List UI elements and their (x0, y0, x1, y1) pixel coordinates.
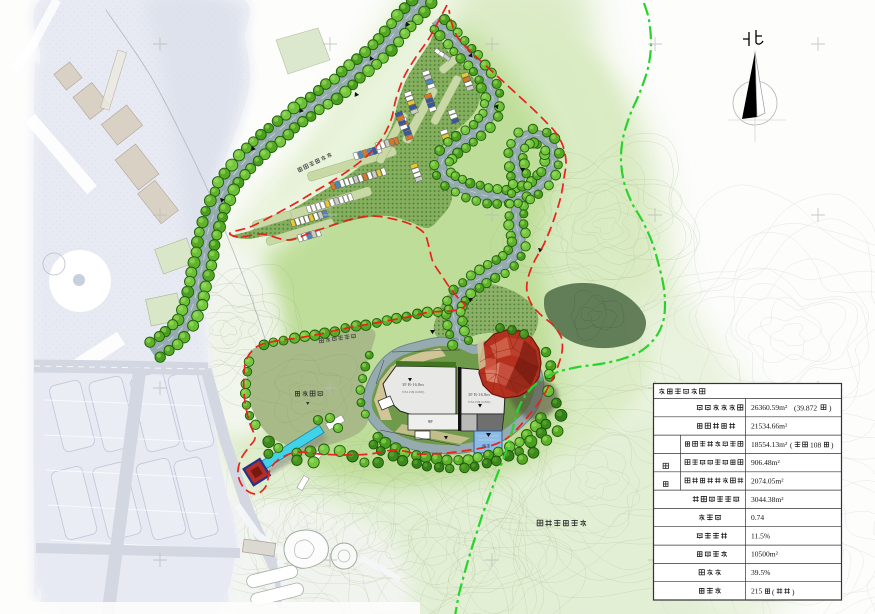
svg-text:3F B-16.8m: 3F B-16.8m (402, 382, 424, 387)
svg-text:WM.198(16.800): WM.198(16.800) (468, 400, 490, 404)
svg-text:215: 215 (751, 586, 763, 595)
svg-text:2074.05m²: 2074.05m² (751, 476, 784, 485)
svg-text:18554.13m²: 18554.13m² (751, 440, 788, 449)
svg-text:39.5%: 39.5% (751, 568, 770, 577)
svg-text:10500m²: 10500m² (751, 550, 779, 559)
svg-text:3044.38m²: 3044.38m² (751, 495, 784, 504)
svg-text:9F: 9F (428, 419, 433, 424)
svg-text:3F B-16.8m: 3F B-16.8m (468, 392, 490, 397)
svg-text:WM.198(16.800): WM.198(16.800) (402, 390, 424, 394)
svg-text:(39.872: (39.872 (794, 404, 817, 413)
svg-text:906.48m²: 906.48m² (751, 458, 780, 467)
svg-text:108: 108 (810, 441, 822, 450)
svg-text:11.5%: 11.5% (751, 531, 770, 540)
svg-text:0.74: 0.74 (751, 513, 764, 522)
svg-text:21534.66m²: 21534.66m² (751, 422, 788, 431)
svg-text:26360.59m²: 26360.59m² (751, 403, 788, 412)
